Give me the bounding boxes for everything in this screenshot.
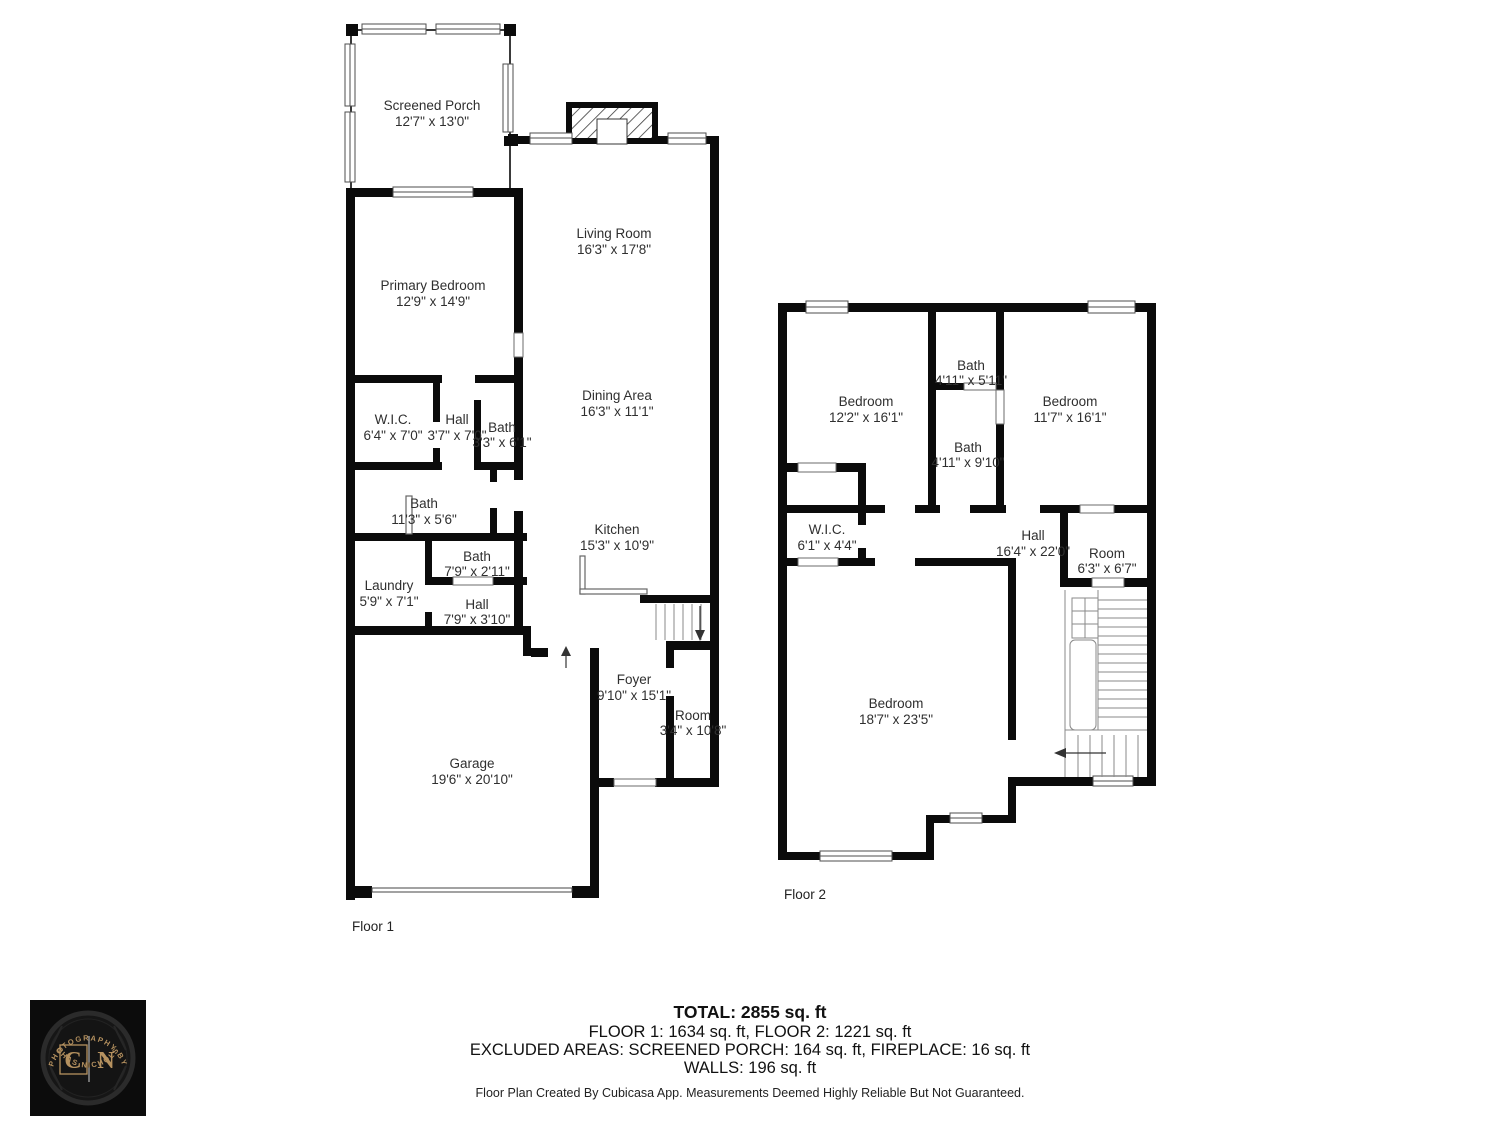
room-label-dining-area: Dining Area (582, 388, 652, 403)
room-label-kitchen: Kitchen (594, 522, 639, 537)
room-dims-bath-small: 4'11" x 5'11" (935, 373, 1007, 388)
room-label-screened-porch: Screened Porch (384, 98, 481, 113)
room-dims-primary-bedroom: 12'9" x 14'9" (396, 294, 470, 309)
room-label-primary-bedroom: Primary Bedroom (380, 278, 485, 293)
room-label-garage: Garage (449, 756, 494, 771)
room-dims-foyer: 9'10" x 15'1" (597, 688, 671, 703)
summary-disclaimer: Floor Plan Created By Cubicasa App. Meas… (476, 1086, 1025, 1100)
room-label-room-f1: Room (675, 708, 711, 723)
floor2-stairs-arrow (1054, 748, 1106, 758)
room-label-bedroom3: Bedroom (869, 696, 924, 711)
floor1-walls (346, 102, 719, 900)
room-dims-wic-f2: 6'1" x 4'4" (797, 538, 856, 553)
room-dims-bath1: 3'3" x 6'1" (472, 435, 531, 450)
floor2-stairs (1065, 590, 1147, 777)
floor2-label: Floor 2 (784, 887, 826, 902)
photographer-logo: C N PHOTOGRAPHY BY CHAS NICHOLS (30, 1000, 146, 1116)
room-label-bath-large: Bath (954, 440, 982, 455)
room-dims-bath-large: 4'11" x 9'10" (931, 455, 1004, 470)
floor1-stairs (656, 604, 701, 640)
room-label-bedroom1: Bedroom (839, 394, 894, 409)
kitchen-counter (580, 556, 647, 594)
room-dims-living-room: 16'3" x 17'8" (577, 242, 651, 257)
room-label-wic-f2: W.I.C. (809, 522, 846, 537)
floorplan-canvas: Screened Porch 12'7" x 13'0" Primary Bed… (0, 0, 1500, 1125)
room-dims-bedroom1: 12'2" x 16'1" (829, 410, 903, 425)
garage-door (372, 888, 572, 892)
summary-excluded: EXCLUDED AREAS: SCREENED PORCH: 164 sq. … (470, 1041, 1031, 1059)
room-label-living-room: Living Room (576, 226, 651, 241)
room-label-bedroom2: Bedroom (1043, 394, 1098, 409)
room-dims-wic-f1: 6'4" x 7'0" (363, 428, 422, 443)
room-label-wic-f1: W.I.C. (375, 412, 412, 427)
floorplan-page: Screened Porch 12'7" x 13'0" Primary Bed… (0, 0, 1500, 1125)
room-dims-hall2: 7'9" x 3'10" (444, 612, 511, 627)
room-label-hall-f2: Hall (1021, 528, 1044, 543)
room-dims-garage: 19'6" x 20'10" (431, 772, 513, 787)
room-label-hall1: Hall (445, 412, 468, 427)
summary-floors: FLOOR 1: 1634 sq. ft, FLOOR 2: 1221 sq. … (589, 1023, 912, 1041)
floor1-stairs-arrow (695, 606, 705, 641)
room-dims-laundry: 5'9" x 7'1" (359, 594, 418, 609)
room-dims-kitchen: 15'3" x 10'9" (580, 538, 654, 553)
garage-entry-arrow (561, 646, 571, 668)
room-dims-bath3: 7'9" x 2'11" (444, 564, 510, 579)
room-label-laundry: Laundry (365, 578, 414, 593)
room-label-room-f2: Room (1089, 546, 1125, 561)
floor1-label: Floor 1 (352, 919, 394, 934)
summary-block: TOTAL: 2855 sq. ft FLOOR 1: 1634 sq. ft,… (470, 1002, 1031, 1100)
room-label-bath-small: Bath (957, 358, 985, 373)
room-label-hall2: Hall (465, 597, 488, 612)
floor2-plan: Bedroom 12'2" x 16'1" Bath 4'11" x 5'11"… (778, 301, 1156, 902)
room-label-foyer: Foyer (617, 672, 652, 687)
room-dims-bath2: 11'3" x 5'6" (391, 512, 457, 527)
summary-walls: WALLS: 196 sq. ft (684, 1059, 817, 1077)
room-dims-room-f1: 3'4" x 10'8" (660, 723, 727, 738)
room-dims-bedroom3: 18'7" x 23'5" (859, 712, 933, 727)
summary-total: TOTAL: 2855 sq. ft (674, 1002, 827, 1022)
room-dims-bedroom2: 11'7" x 16'1" (1033, 410, 1106, 425)
room-label-bath2: Bath (410, 496, 438, 511)
room-dims-room-f2: 6'3" x 6'7" (1077, 561, 1136, 576)
room-label-bath3: Bath (463, 549, 491, 564)
room-label-bath1: Bath (488, 420, 516, 435)
floor1-plan: Screened Porch 12'7" x 13'0" Primary Bed… (345, 24, 726, 934)
room-dims-hall-f2: 16'4" x 22'0" (996, 544, 1070, 559)
room-dims-screened-porch: 12'7" x 13'0" (395, 114, 469, 129)
room-dims-dining-area: 16'3" x 11'1" (580, 404, 653, 419)
